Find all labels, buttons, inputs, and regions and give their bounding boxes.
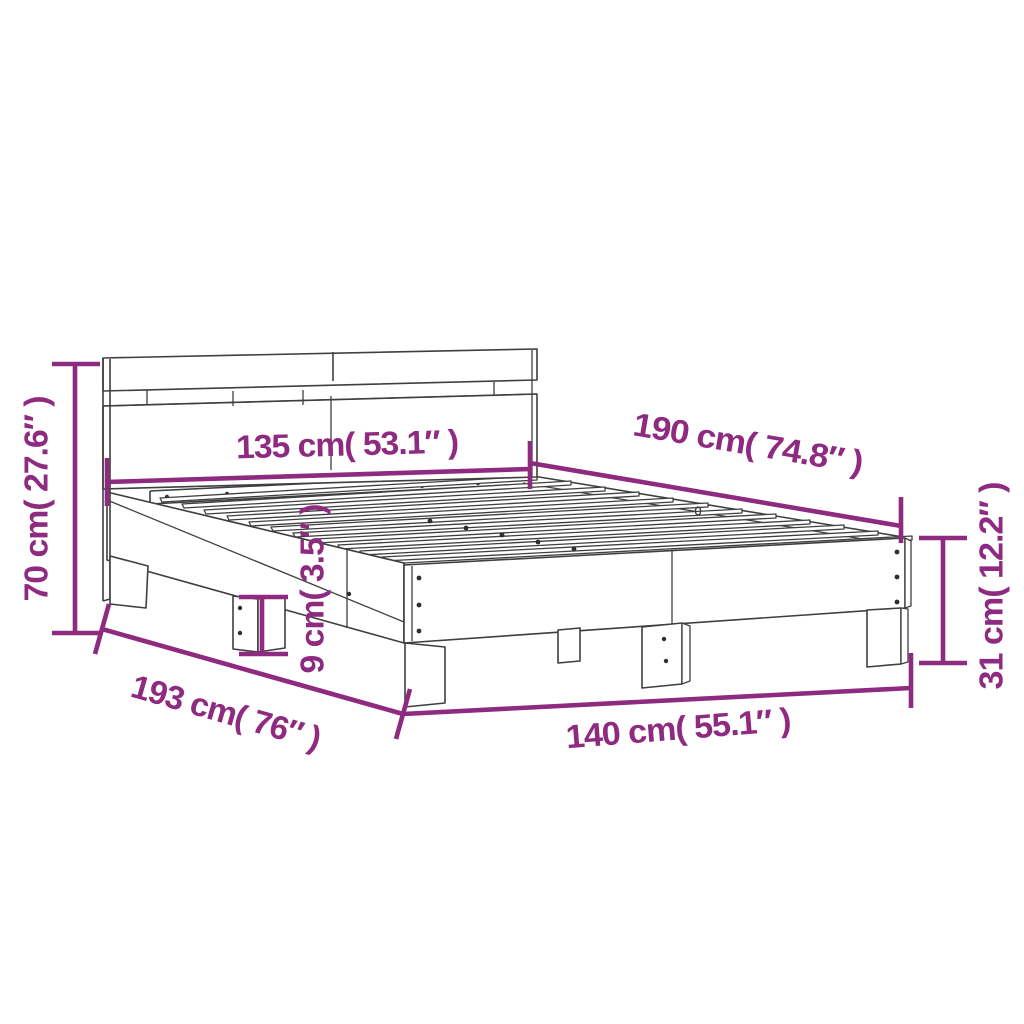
dimension-frame-side-height: 31 cm( 12.2″ ) bbox=[919, 482, 1010, 689]
dimension-label-bed-length: 190 cm( 74.8″ ) bbox=[631, 405, 866, 480]
dimension-label-total-length: 193 cm( 76″ ) bbox=[127, 667, 325, 756]
bed-frame-dimension-diagram: 70 cm( 27.6″ ) 135 cm( 53.1″ ) 190 cm( 7… bbox=[0, 0, 1024, 1024]
bed-drawing bbox=[103, 349, 912, 707]
dimension-label-headboard-height: 70 cm( 27.6″ ) bbox=[18, 396, 55, 601]
dimension-bed-length: 190 cm( 74.8″ ) bbox=[530, 405, 901, 543]
bed-diagram-canvas: 70 cm( 27.6″ ) 135 cm( 53.1″ ) 190 cm( 7… bbox=[0, 0, 1024, 1024]
dimension-label-frame-width: 140 cm( 55.1″ ) bbox=[564, 701, 791, 756]
dimension-label-headboard-width: 135 cm( 53.1″ ) bbox=[236, 423, 459, 466]
dimension-headboard-height: 70 cm( 27.6″ ) bbox=[18, 364, 101, 633]
dimension-label-leg-height: 9 cm( 3.5″ ) bbox=[294, 504, 331, 673]
measured-leg bbox=[233, 596, 285, 652]
dimension-label-frame-side-height: 31 cm( 12.2″ ) bbox=[973, 482, 1010, 689]
